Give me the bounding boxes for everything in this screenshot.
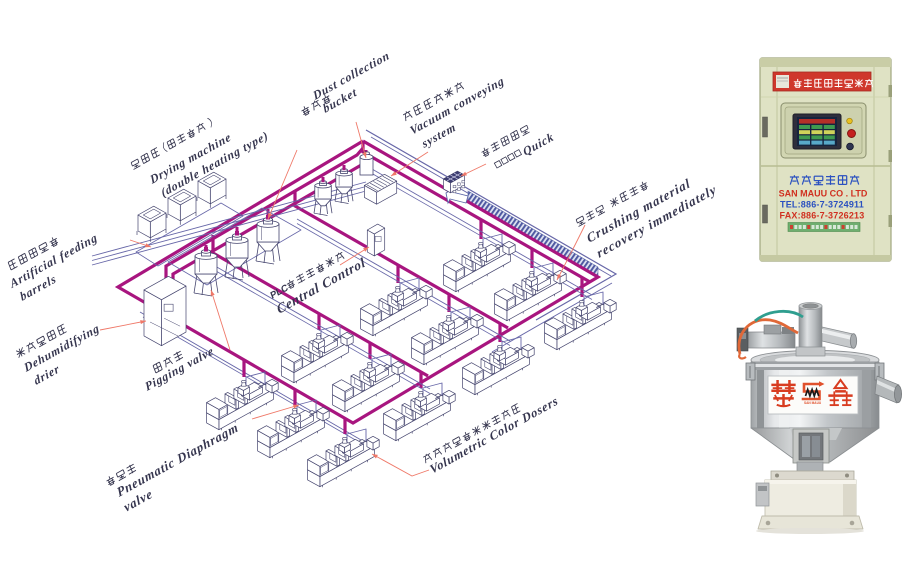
svg-text:FAX:886-7-3726213: FAX:886-7-3726213 (780, 211, 865, 221)
svg-text:SAN MAUU CO . LTD: SAN MAUU CO . LTD (779, 189, 868, 199)
svg-text:TEL:886-7-3724911: TEL:886-7-3724911 (780, 200, 864, 210)
svg-text:SAN MAUU: SAN MAUU (804, 401, 822, 405)
